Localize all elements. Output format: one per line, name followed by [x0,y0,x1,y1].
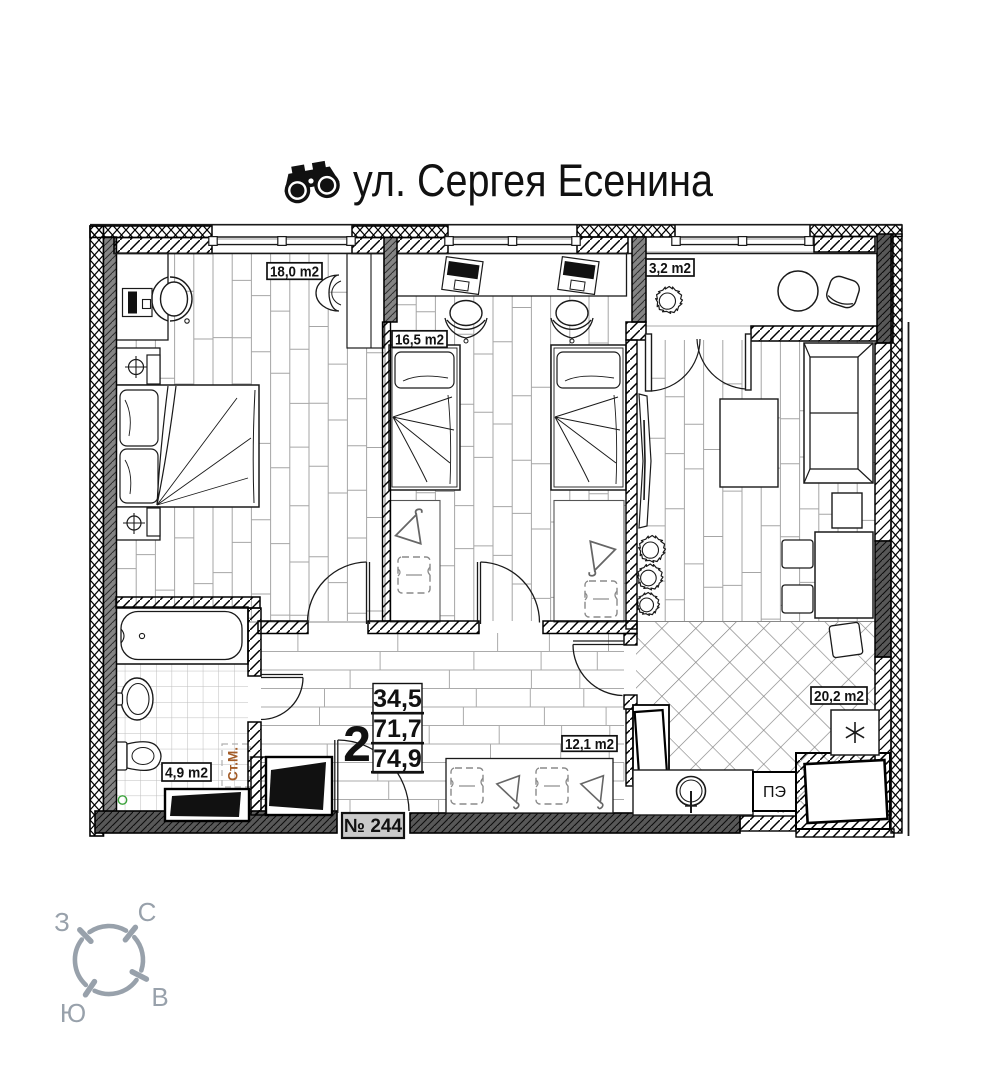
svg-text:С: С [138,897,157,927]
svg-text:Ю: Ю [60,998,86,1028]
svg-text:34,5: 34,5 [373,685,422,713]
svg-text:4,9 m2: 4,9 m2 [165,764,208,781]
svg-text:№ 244: № 244 [344,816,403,837]
svg-text:74,9: 74,9 [373,745,422,773]
svg-text:3,2 m2: 3,2 m2 [649,260,691,277]
svg-text:Ст.М.: Ст.М. [226,747,241,781]
svg-text:З: З [54,907,70,937]
svg-text:ул. Сергея Есенина: ул. Сергея Есенина [353,155,714,206]
svg-text:12,1 m2: 12,1 m2 [565,736,614,753]
svg-text:16,5 m2: 16,5 m2 [395,331,444,348]
svg-text:В: В [151,982,168,1012]
svg-text:18,0 m2: 18,0 m2 [270,263,319,280]
svg-text:2: 2 [343,716,371,772]
svg-text:71,7: 71,7 [373,715,422,743]
svg-text:ПЭ: ПЭ [763,784,786,801]
svg-text:20,2 m2: 20,2 m2 [814,688,864,705]
